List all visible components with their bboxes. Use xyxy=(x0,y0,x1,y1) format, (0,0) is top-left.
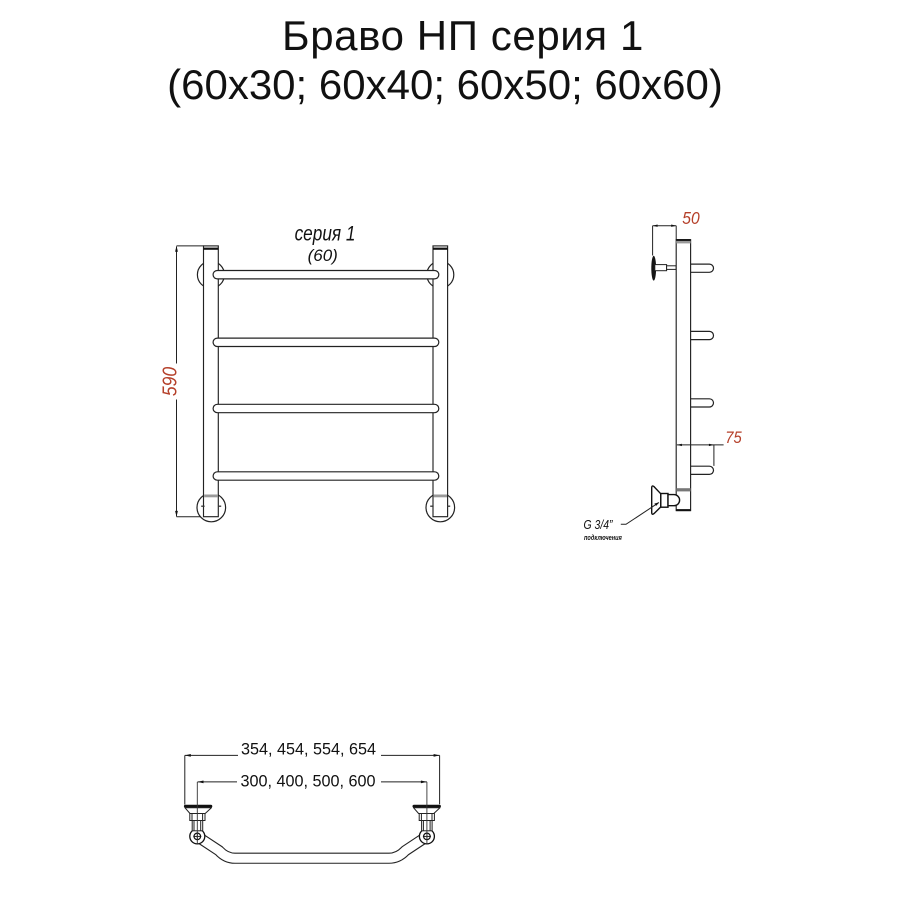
svg-text:G 3/4”: G 3/4” xyxy=(584,519,614,532)
svg-text:354, 454, 554, 654: 354, 454, 554, 654 xyxy=(241,741,376,759)
svg-text:(60x30; 60x40; 60x50; 60x60): (60x30; 60x40; 60x50; 60x60) xyxy=(167,61,723,108)
svg-text:50: 50 xyxy=(682,208,700,228)
svg-text:Браво НП серия 1: Браво НП серия 1 xyxy=(282,12,644,59)
svg-text:300, 400, 500, 600: 300, 400, 500, 600 xyxy=(241,772,376,790)
svg-text:590: 590 xyxy=(158,366,180,396)
svg-text:серия 1: серия 1 xyxy=(295,223,356,246)
svg-text:подключения: подключения xyxy=(584,533,622,542)
svg-text:(60): (60) xyxy=(308,246,338,265)
svg-text:75: 75 xyxy=(725,429,742,447)
